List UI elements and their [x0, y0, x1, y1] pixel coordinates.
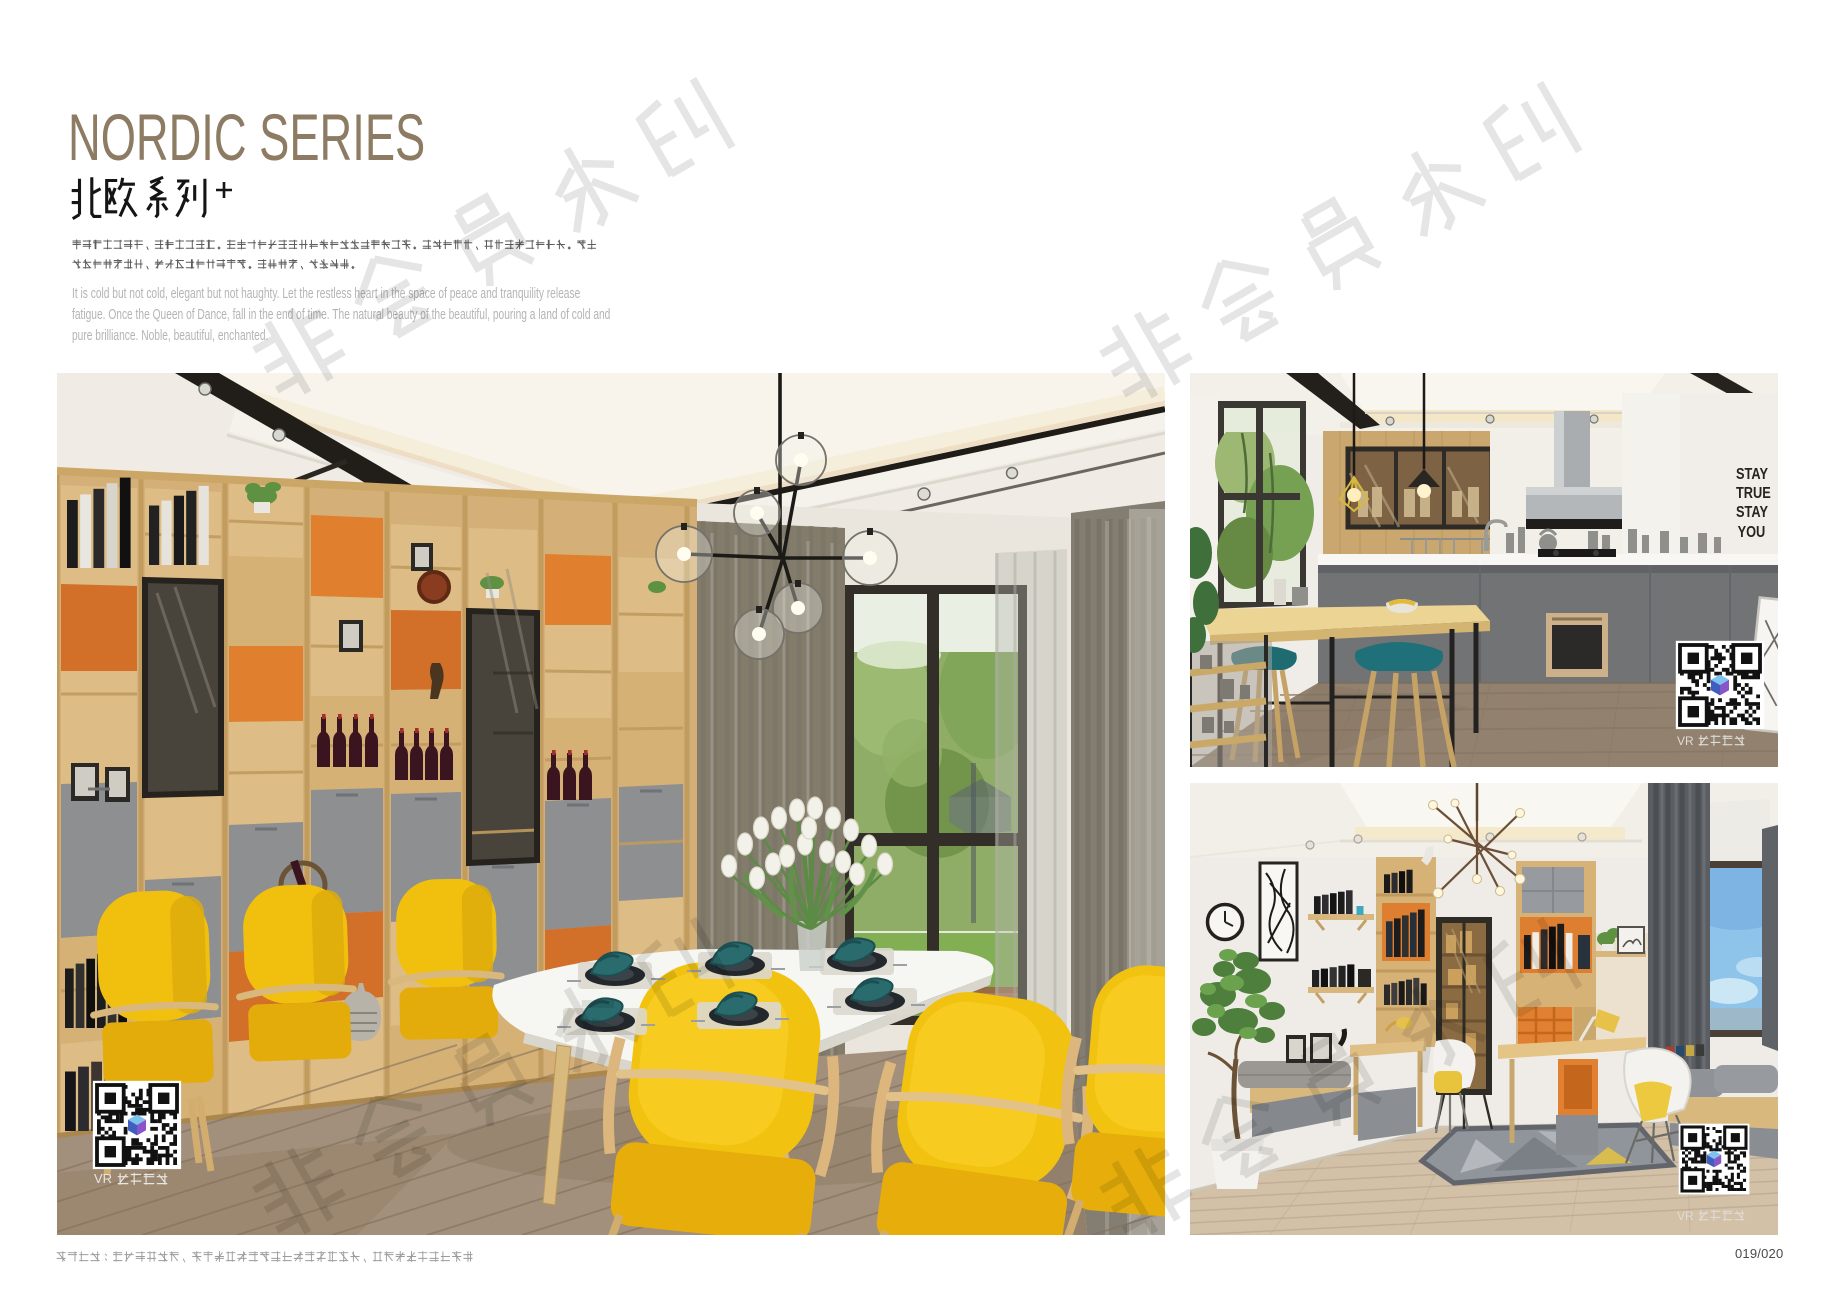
svg-text:STAY: STAY	[1736, 504, 1768, 522]
svg-text:VR: VR	[1677, 734, 1694, 748]
svg-text:YOU: YOU	[1738, 524, 1766, 542]
svg-text:VR: VR	[1677, 1209, 1694, 1223]
svg-text:VR: VR	[94, 1171, 112, 1186]
svg-text:STAY: STAY	[1736, 466, 1768, 484]
svg-text:TRUE: TRUE	[1736, 485, 1771, 503]
